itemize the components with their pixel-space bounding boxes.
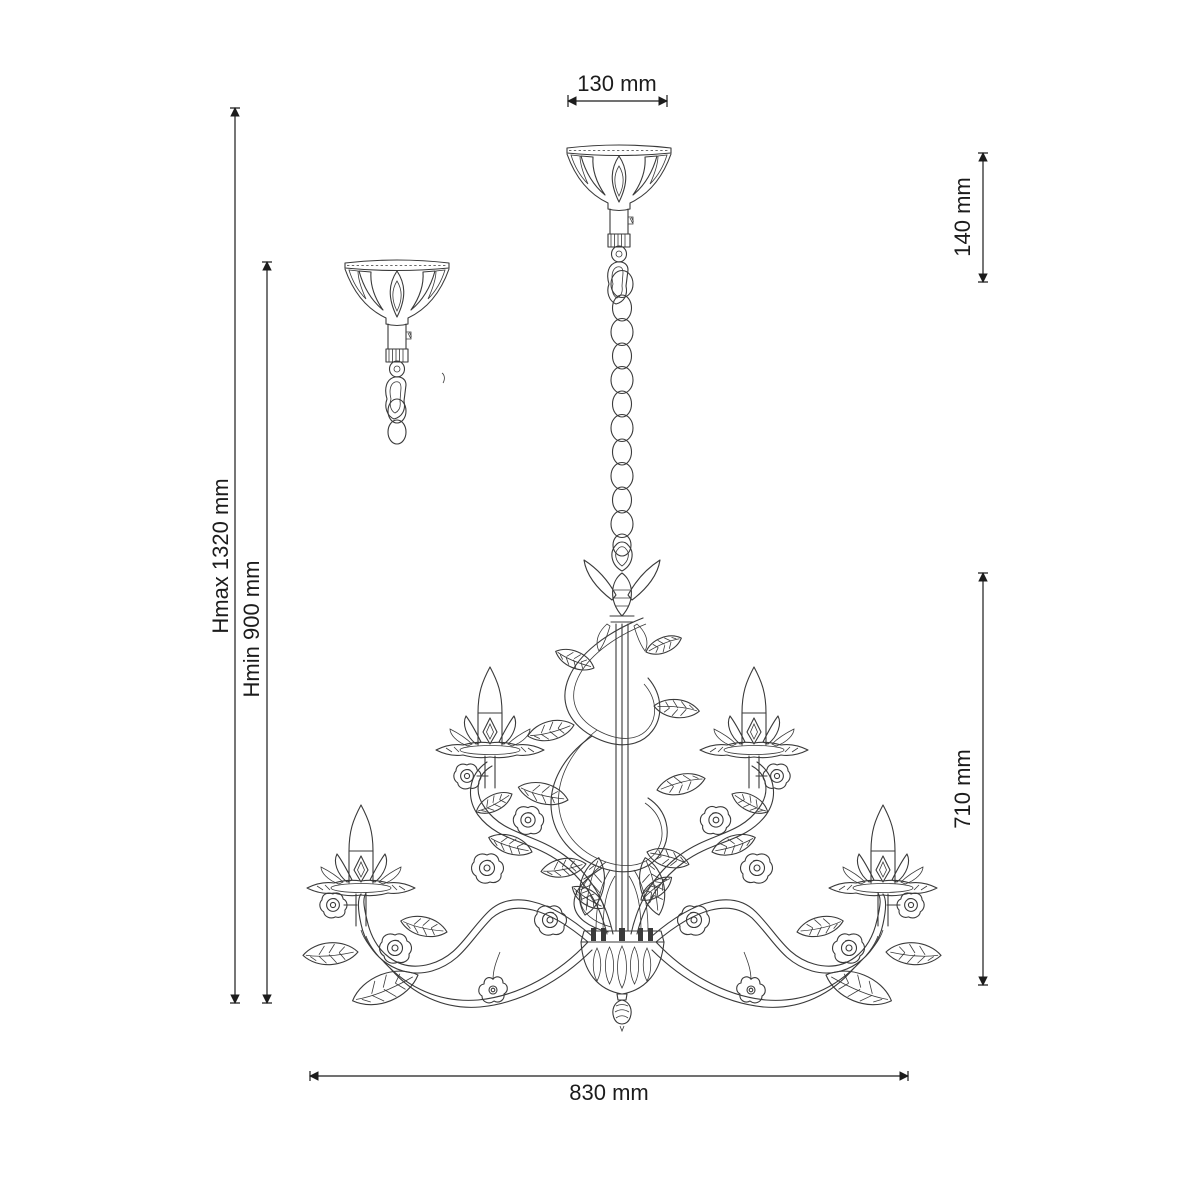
dim-label-fixture-width: 830 mm — [569, 1081, 648, 1105]
dim-label-fixture-height: 710 mm — [951, 749, 975, 828]
chandelier-body-drawing — [303, 542, 942, 1031]
dimension-drawing: 130 mm 140 mm Hmax 1320 mm Hmin 900 mm 7… — [0, 0, 1200, 1200]
dim-label-height-max: Hmax 1320 mm — [209, 478, 233, 633]
dim-label-height-min: Hmin 900 mm — [240, 561, 264, 698]
dim-label-canopy-width: 130 mm — [577, 72, 656, 96]
dimension-lines — [230, 95, 988, 1081]
chandelier-line-art — [0, 0, 1200, 1200]
main-canopy-drawing — [567, 145, 671, 304]
chain-drawing — [611, 271, 633, 557]
small-canopy-drawing — [345, 260, 449, 444]
dim-label-suspension-height: 140 mm — [951, 177, 975, 256]
